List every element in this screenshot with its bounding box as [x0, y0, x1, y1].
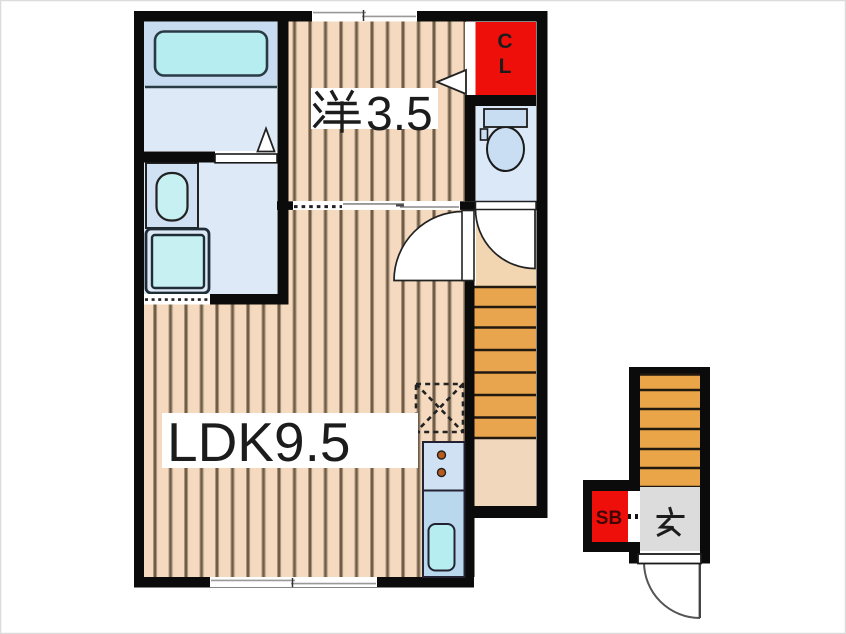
svg-text:C: C [497, 30, 512, 53]
svg-text:SB: SB [596, 508, 622, 529]
svg-text:LDK9.5: LDK9.5 [167, 411, 350, 473]
svg-text:L: L [499, 55, 512, 78]
svg-text:3.5: 3.5 [366, 88, 433, 141]
